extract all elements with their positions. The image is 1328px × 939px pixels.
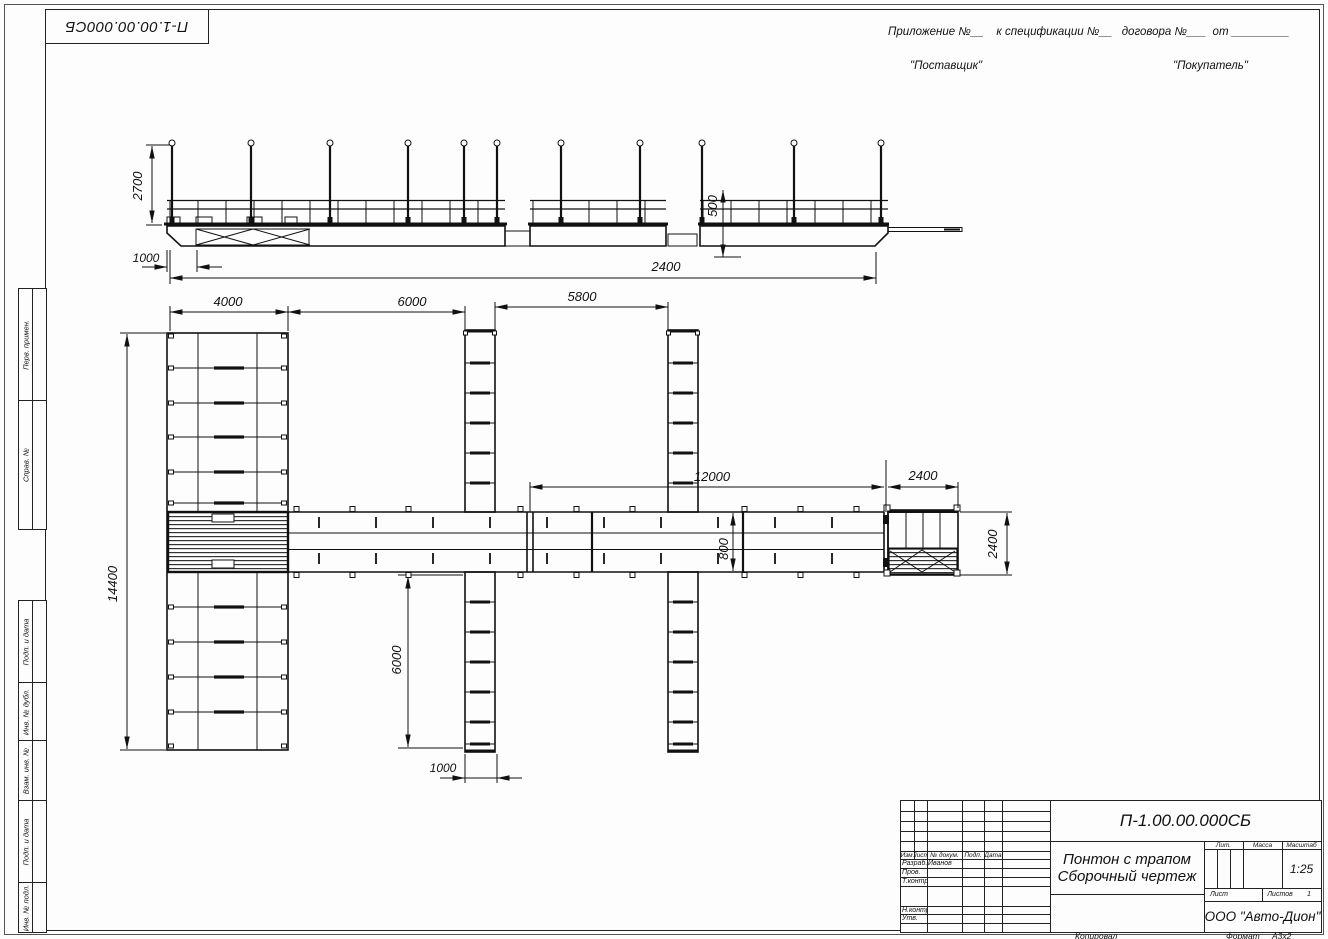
col-docnum: № докум. [927,851,962,859]
row-nkontr: Н.контр. [902,906,927,914]
dim-elev-offset-label: 1000 [133,251,160,265]
dim-finger-length-label: 6000 [389,645,404,675]
hull-mid [530,226,666,246]
shore-ramp [888,228,962,232]
deck-left [164,223,507,226]
hull-connector-1 [505,231,530,246]
elevation-view: 2700 1000 500 2400 [130,145,962,284]
plan-view: 14400 4000 6000 5800 12000 2400 800 6000 [105,289,1012,783]
dim-finger-width-label: 1000 [430,761,457,775]
razrab-name: Иванов [928,859,961,868]
dim-span-label: 5800 [568,289,598,304]
dim-pontoon-width-label: 4000 [214,294,244,309]
format-label: Формат [1226,931,1260,939]
row-razrab: Разраб. [902,859,927,868]
scale-value: 1:25 [1282,849,1321,888]
dim-elev-height-label: 2700 [130,171,145,202]
dim-ramp-width-label: 2400 [908,468,939,483]
list-label: Лист [1204,888,1234,901]
massa-label: Масса [1243,841,1282,849]
finger-pontoons [465,330,698,752]
railing [167,201,888,210]
col-data: Дата [984,851,1002,859]
hull-right [700,226,888,246]
col-list: Лист [914,851,927,859]
drawing-views: 2700 1000 500 2400 [0,0,1328,939]
title-block: П-1.00.00.000СБ Понтон с трапом Сборочны… [900,800,1322,933]
deck-mid [528,223,668,226]
walkway [288,512,889,572]
masshtab-label: Масштаб [1282,841,1321,849]
hull-connector-2 [668,234,697,246]
dim-gap-label: 6000 [398,294,428,309]
row-prov: Пров. [902,868,927,877]
row-tkontr: Т.контр. [902,877,927,886]
dim-walkway-label: 12000 [694,469,731,484]
titleblock-designation: П-1.00.00.000СБ [1050,801,1321,841]
elevation-dimensions: 2700 1000 500 2400 [130,145,876,284]
gangway-hatch [168,512,288,572]
dim-plan-length-label: 14400 [105,565,120,602]
row-utv: Утв. [902,914,927,923]
company-name: ООО "Авто-Дион" [1204,901,1321,932]
dim-elev-length-label: 2400 [651,259,682,274]
doc-title-line1: Понтон с трапом [1058,851,1197,868]
ramp-pontoon [884,505,960,576]
listov-label: Листов [1262,888,1298,901]
col-izm: Изм. [901,851,914,859]
drawing-sheet: П-1.00.00.000СБ Приложение №__ к специфи… [0,0,1328,939]
doc-title-line2: Сборочный чертеж [1058,868,1197,885]
lit-label: Лит. [1204,841,1243,849]
dim-elev-freeboard-label: 500 [705,194,720,216]
copied-label: Копировал [1075,931,1117,939]
col-podp: Подп. [962,851,984,859]
dim-ramp-height-label: 2400 [985,529,1000,560]
folded-gangway-scissor [196,229,310,245]
titleblock-doc-title: Понтон с трапом Сборочный чертеж [1050,841,1204,894]
format-value: А3х2 [1272,931,1291,939]
listov-value: 1 [1299,888,1319,901]
